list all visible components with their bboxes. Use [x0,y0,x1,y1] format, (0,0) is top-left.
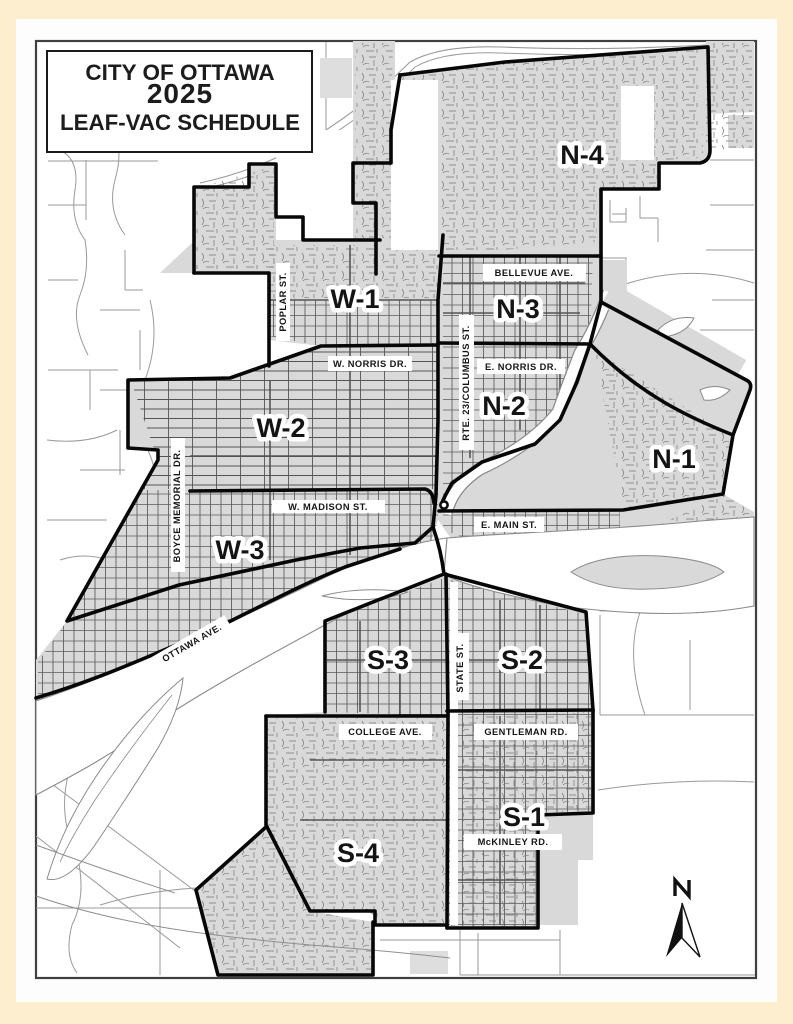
svg-text:N-3: N-3 [496,294,540,324]
svg-text:W. MADISON ST.: W. MADISON ST. [288,502,368,512]
svg-text:RTE. 23/COLUMBUS ST.: RTE. 23/COLUMBUS ST. [461,325,471,440]
svg-text:N-2: N-2 [482,391,526,421]
svg-text:STATE ST.: STATE ST. [455,643,465,692]
svg-text:W-1: W-1 [331,284,380,314]
svg-text:2025: 2025 [147,78,213,109]
svg-text:S-1: S-1 [503,802,545,832]
svg-text:S-2: S-2 [501,645,543,675]
svg-text:E. NORRIS DR.: E. NORRIS DR. [485,362,557,372]
svg-text:N-1: N-1 [652,444,696,474]
svg-text:N-4: N-4 [560,140,604,170]
svg-text:S-3: S-3 [367,645,409,675]
svg-text:W-2: W-2 [257,413,306,443]
svg-text:BOYCE MEMORIAL DR.: BOYCE MEMORIAL DR. [172,450,182,563]
svg-text:POPLAR ST.: POPLAR ST. [278,272,288,331]
svg-text:COLLEGE AVE.: COLLEGE AVE. [348,727,422,737]
svg-text:S-4: S-4 [337,838,379,868]
svg-text:McKINLEY RD.: McKINLEY RD. [478,837,549,847]
svg-text:GENTLEMAN RD.: GENTLEMAN RD. [484,727,567,737]
svg-text:LEAF-VAC SCHEDULE: LEAF-VAC SCHEDULE [60,110,300,135]
svg-text:W. NORRIS DR.: W. NORRIS DR. [333,359,407,369]
svg-text:W-3: W-3 [216,535,265,565]
svg-text:E. MAIN ST.: E. MAIN ST. [481,520,537,530]
svg-text:BELLEVUE AVE.: BELLEVUE AVE. [495,268,574,278]
